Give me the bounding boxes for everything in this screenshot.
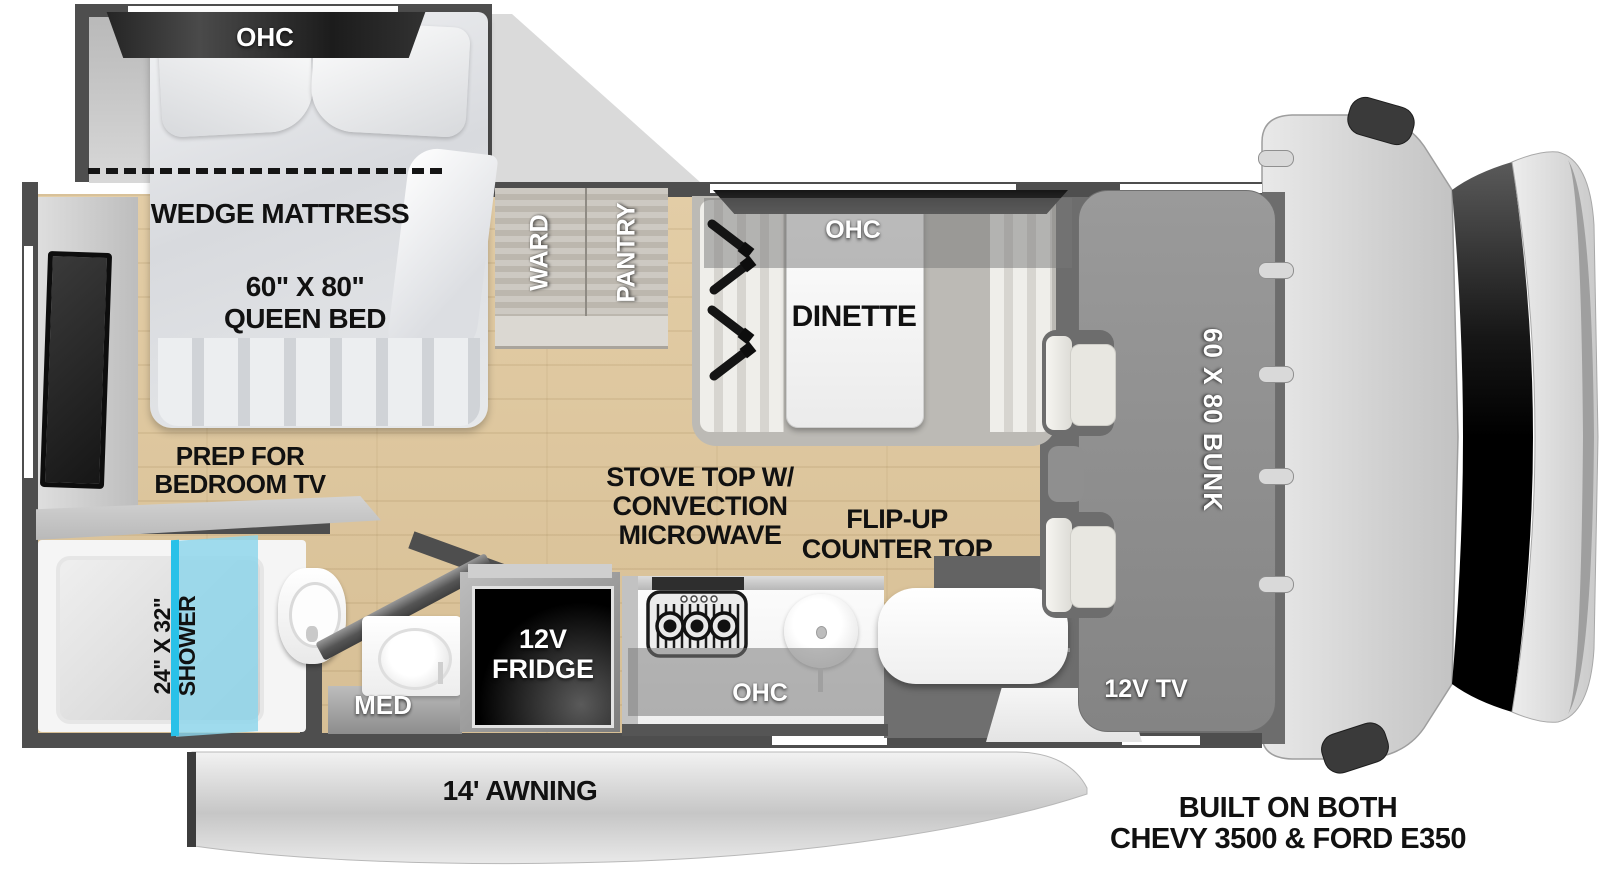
bed-type-label: QUEEN BED (180, 304, 430, 333)
prep-tv-label-1: PREP FOR (150, 443, 330, 470)
stove-label-3: MICROWAVE (600, 521, 800, 549)
awning-label: 14' AWNING (420, 776, 620, 805)
seat-passenger-cushion (1070, 344, 1116, 426)
wedge-mattress-label: WEDGE MATTRESS (130, 199, 430, 228)
window-kitchen (772, 736, 887, 745)
bunk-mid-tab (1048, 446, 1084, 502)
stove-label-1: STOVE TOP W/ (600, 463, 800, 491)
dinette-label: DINETTE (778, 301, 930, 333)
seatbelt-icons (690, 200, 800, 390)
seat-driver-back (1046, 518, 1072, 612)
fridge-top-band (468, 564, 612, 578)
dinette-ohc-label: OHC (798, 217, 908, 243)
med-label: MED (335, 692, 431, 719)
bedroom-tv (40, 251, 112, 489)
fridge-label-1: 12V (475, 625, 611, 653)
stove-label-2: CONVECTION (598, 492, 802, 520)
bed-slideout-wall-left (75, 4, 89, 182)
clearance-tab-1 (1258, 150, 1294, 167)
counter-kick (622, 724, 888, 736)
seat-passenger-back (1046, 336, 1072, 430)
ward-label: WARD (527, 191, 554, 315)
flipup-counter (878, 588, 1068, 684)
fridge-label-2: FRIDGE (475, 655, 611, 683)
cab-body (1262, 115, 1458, 759)
chassis-label-1: BUILT ON BOTH (1118, 793, 1458, 823)
clearance-tab-5 (1258, 576, 1294, 593)
windshield (1452, 162, 1533, 712)
bunk-label: 60 X 80 BUNK (1198, 310, 1226, 530)
seat-driver-cushion (1070, 526, 1116, 608)
kitchen-ohc-label: OHC (700, 680, 820, 706)
shower-size-text: 24" X 32" (150, 546, 175, 746)
kitchen-sink-drain (816, 626, 827, 639)
slideout-dash-line (88, 168, 442, 174)
clearance-tab-2 (1258, 262, 1294, 279)
slideout-flare (492, 14, 700, 182)
window-bedroom (24, 246, 33, 478)
clearance-tab-3 (1258, 366, 1294, 383)
bedroom-ohc-label: OHC (205, 24, 325, 51)
shower-label: 24" X 32" SHOWER (150, 546, 202, 746)
pantry-label: PANTRY (614, 191, 641, 315)
cabinet-front-face (495, 316, 668, 349)
flipup-label-1: FLIP-UP (817, 505, 977, 533)
toilet-drain (306, 626, 318, 642)
awning-rail (187, 752, 196, 847)
bed-foot-pleats (158, 338, 480, 426)
awning-shape (192, 752, 1087, 864)
clearance-tab-4 (1258, 468, 1294, 485)
bunk (1078, 190, 1276, 732)
prep-tv-label-2: BEDROOM TV (148, 471, 332, 498)
fridge-face: 12V FRIDGE (472, 586, 614, 728)
bed-size-label: 60" X 80" (180, 272, 430, 301)
chassis-label-2: CHEVY 3500 & FORD E350 (1098, 824, 1478, 854)
rv-floorplan: OHC WEDGE MATTRESS 60" X 80" QUEEN BED P… (0, 0, 1600, 875)
bunk-tv-label: 12V TV (1086, 676, 1206, 702)
shower-text: SHOWER (175, 546, 200, 746)
bath-faucet (438, 662, 443, 684)
